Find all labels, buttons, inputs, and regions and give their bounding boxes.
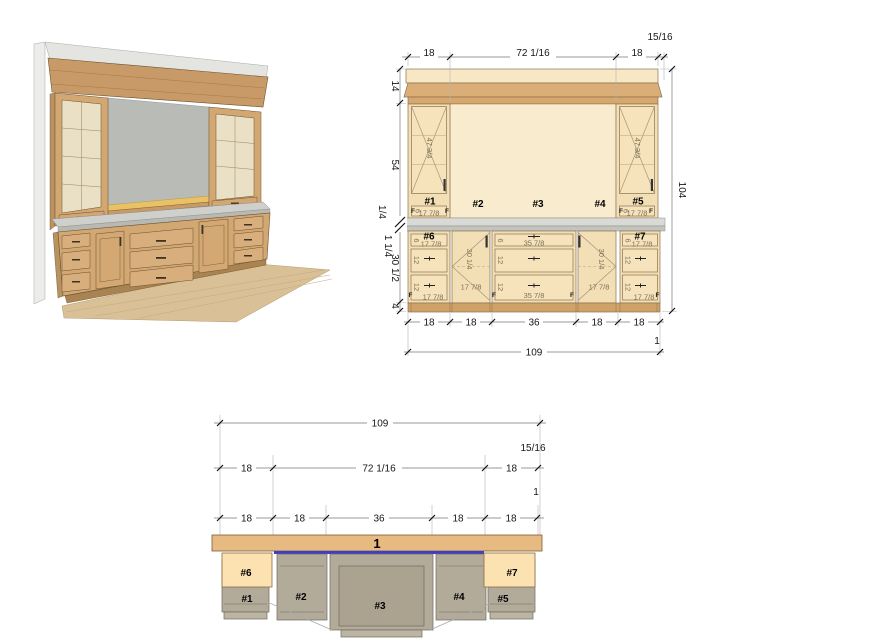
- plan-label-4: #4: [453, 592, 465, 603]
- base-center-drawer-stack: [130, 228, 193, 287]
- label-cabinet-3: #3: [532, 199, 544, 210]
- finished-end-mark: F: [570, 292, 574, 299]
- plan-label-3: #3: [374, 601, 386, 612]
- dim-drawer-12: 12: [496, 256, 505, 264]
- plan-wall-line: [274, 551, 484, 554]
- dim-opening: 17 7/8: [589, 283, 610, 292]
- dim-top-center: 72 1/16: [516, 48, 550, 59]
- dim-top-left: 18: [423, 48, 435, 59]
- dim-opening: 17 7/8: [423, 293, 444, 302]
- door-pull: [444, 179, 446, 191]
- backsplash: [403, 218, 665, 226]
- plan-label-2: #2: [295, 592, 307, 603]
- hutch-side-panel: [50, 93, 55, 230]
- base-right-door: [199, 219, 228, 273]
- label-cabinet-1: #1: [424, 197, 436, 208]
- dim-drawer-12: 12: [624, 256, 633, 264]
- plan-dim-upper-3: 18: [506, 464, 518, 475]
- elevation-view[interactable]: 18 72 1/16 18 15/16 14 54 1/4 1 1/4 30 1…: [376, 32, 687, 359]
- finished-end-mark: F: [411, 208, 415, 215]
- plan-label-1: #1: [241, 594, 253, 605]
- dim-opening: 17 7/8: [634, 293, 655, 302]
- dim-opening: 17 7/8: [461, 283, 482, 292]
- dim-drawer-6: 6: [624, 238, 633, 242]
- crown-molding-elev: [404, 83, 662, 97]
- dim-bottom-4: 18: [591, 318, 603, 329]
- dim-door-height: 47 3/4: [633, 138, 642, 159]
- dim-bottom-5: 18: [633, 318, 645, 329]
- finished-end-mark: F: [445, 208, 449, 215]
- dim-opening: 17 7/8: [421, 240, 442, 249]
- finished-end-mark: F: [619, 208, 623, 215]
- plan-dim-lower-1: 18: [241, 514, 253, 525]
- drawing-canvas: 18 72 1/16 18 15/16 14 54 1/4 1 1/4 30 1…: [0, 0, 870, 643]
- plan-label-5: #5: [497, 594, 509, 605]
- plan-countertop-label: 1: [373, 536, 380, 551]
- dim-toe-height: 4: [389, 303, 400, 309]
- base-left-door: [96, 231, 124, 289]
- dim-drawer-12: 12: [496, 283, 505, 291]
- dim-total-height: 104: [676, 182, 687, 199]
- dim-drawer-12: 12: [412, 256, 421, 264]
- dim-break-bg: [393, 216, 407, 232]
- dim-bottom-offset: 1: [654, 336, 660, 347]
- dim-drawer-6: 6: [496, 238, 505, 242]
- plan-label-7: #7: [506, 568, 518, 579]
- toe-kick-elev: [408, 303, 660, 312]
- dim-opening-wide: 35 7/8: [524, 291, 545, 300]
- soffit: [406, 69, 658, 83]
- plan-dim-lower-4: 18: [452, 514, 464, 525]
- dim-bottom-3: 36: [528, 318, 540, 329]
- dim-top-offset: 15/16: [647, 32, 672, 43]
- plan-view[interactable]: 109 15/16 18 72 1/16 18 1 18 18 36 18 18…: [212, 415, 546, 637]
- dim-opening: 17 7/8: [632, 240, 653, 249]
- countertop-elev: [403, 226, 665, 231]
- plan-dim-lower-5: 18: [505, 514, 517, 525]
- dim-upper-height: 54: [389, 159, 400, 171]
- crown-band: [408, 97, 658, 104]
- label-cabinet-4: #4: [594, 199, 606, 210]
- plan-label-6: #6: [240, 568, 252, 579]
- base-4: [578, 231, 616, 303]
- dim-door-height: 47 3/4: [425, 138, 434, 159]
- finished-end-mark: F: [656, 292, 660, 299]
- dim-base-height: 30 1/2: [389, 254, 400, 282]
- dim-door-opening: 30 1/4: [597, 249, 606, 270]
- tv-back-panel: [108, 98, 209, 205]
- base-left-drawer-stack: [62, 233, 90, 292]
- finished-end-mark: F: [649, 208, 653, 215]
- plan-dim-upper-1: 18: [241, 464, 253, 475]
- dim-top-right: 18: [631, 48, 643, 59]
- plan-dim-side-offset: 1: [533, 487, 539, 498]
- finished-end-mark: F: [409, 292, 413, 299]
- plan-dim-lower-3: 36: [373, 514, 385, 525]
- finished-end-mark: F: [492, 292, 496, 299]
- dim-drawer-12: 12: [412, 283, 421, 291]
- plan-dim-total: 109: [372, 419, 389, 430]
- dim-total-width: 109: [526, 348, 543, 359]
- plan-dim-lower-2: 18: [294, 514, 306, 525]
- plan-dim-upper-2: 72 1/16: [362, 464, 396, 475]
- dim-drawer-12: 12: [624, 283, 633, 291]
- dim-door-opening: 30 1/4: [465, 249, 474, 270]
- base-right-drawer-stack: [234, 216, 263, 264]
- dim-bottom-1: 18: [423, 318, 435, 329]
- label-cabinet-2: #2: [472, 199, 484, 210]
- dim-gap: 1/4: [376, 205, 387, 219]
- dim-drawer-6: 6: [412, 238, 421, 242]
- door-pull: [578, 236, 580, 248]
- render-3d-view[interactable]: [34, 42, 332, 322]
- label-cabinet-5: #5: [632, 197, 644, 208]
- wall-left-edge: [34, 42, 45, 304]
- door-pull: [486, 236, 488, 248]
- dim-opening-wide: 35 7/8: [524, 239, 545, 248]
- dim-crown-height: 14: [389, 80, 400, 92]
- right-tower-drawer-pull: [231, 203, 239, 205]
- door-pull: [651, 179, 653, 191]
- plan-dim-back-offset: 15/16: [520, 443, 545, 454]
- dim-bottom-2: 18: [465, 318, 477, 329]
